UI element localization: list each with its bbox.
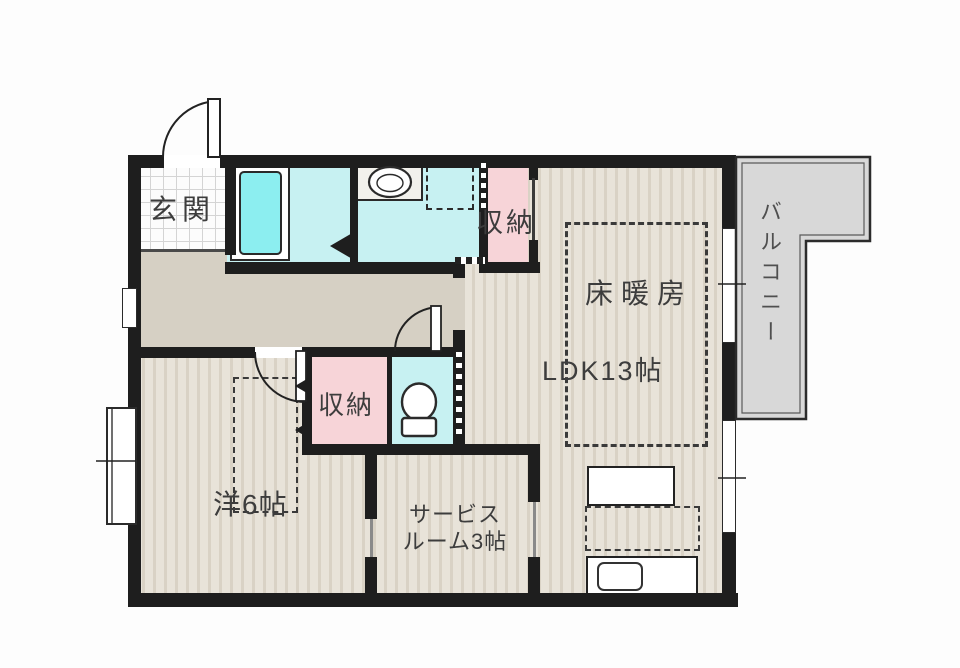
label-upper-storage: 収納 xyxy=(476,201,536,240)
washbasin xyxy=(369,167,411,197)
label-ldk: LDK13帖 xyxy=(542,349,664,388)
label-entrance: 玄関 xyxy=(149,188,215,228)
toilet-door-leaf xyxy=(431,306,441,351)
label-service-room-line2: ルーム3帖 xyxy=(398,524,512,556)
toilet-tank xyxy=(402,418,436,436)
label-balcony: バルコニー xyxy=(753,200,785,350)
floor-plan: 玄関 収納 床暖房 LDK13帖 バルコニー 収納 洋6帖 サービス ルーム3帖 xyxy=(0,0,960,668)
label-bedroom: 洋6帖 xyxy=(213,483,288,523)
label-bedroom-storage: 収納 xyxy=(318,385,374,422)
bedroom-door-leaf xyxy=(296,351,306,401)
label-floor-heating: 床暖房 xyxy=(585,272,693,312)
plan-overlay xyxy=(0,0,960,668)
toilet-bowl xyxy=(402,384,436,421)
entrance-door-leaf xyxy=(208,99,220,157)
closet-arrow-lower xyxy=(295,420,312,440)
bath-door-arrow xyxy=(330,232,354,260)
